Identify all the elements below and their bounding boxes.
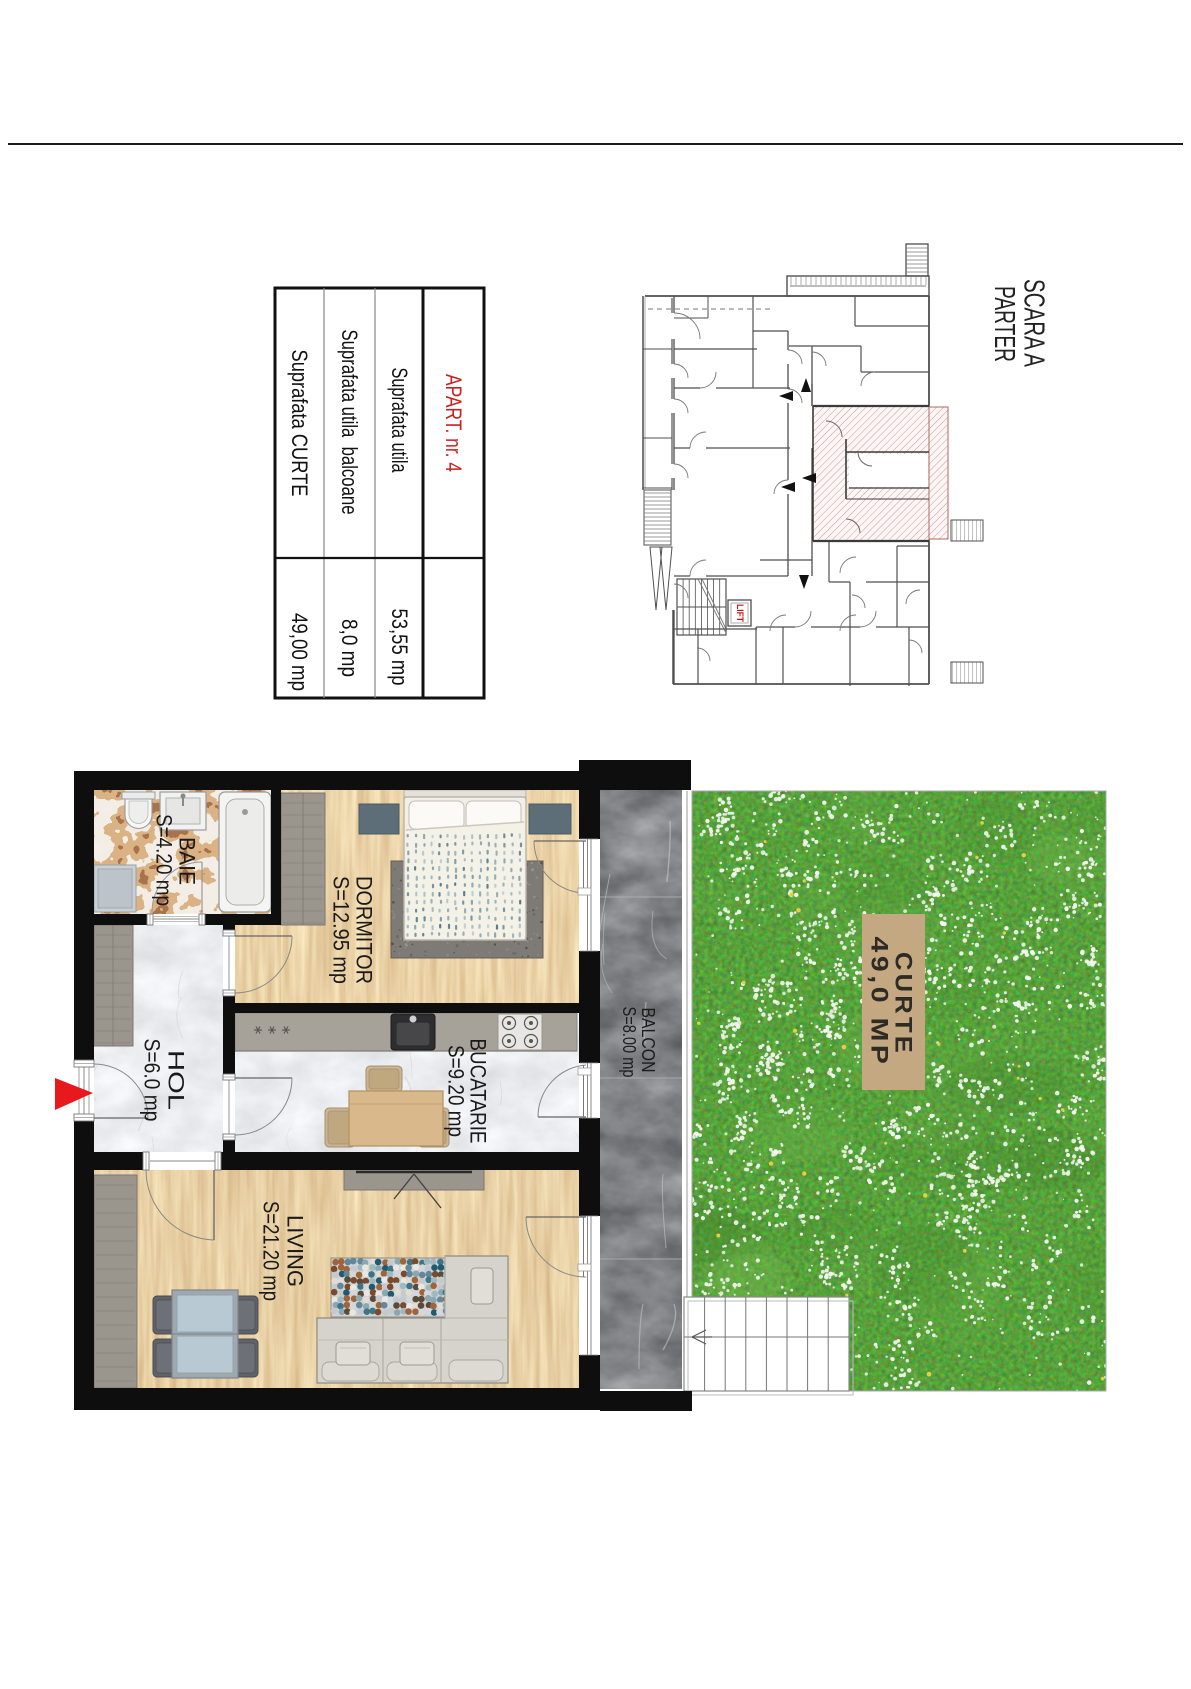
svg-text:S=6.0 mp: S=6.0 mp: [140, 1039, 165, 1122]
svg-text:49,0 MP: 49,0 MP: [866, 937, 893, 1068]
svg-text:BALCON: BALCON: [638, 1008, 658, 1073]
svg-text:HOL: HOL: [164, 1050, 189, 1110]
svg-text:BAIE: BAIE: [175, 837, 200, 885]
svg-text:49,00 mp: 49,00 mp: [287, 613, 312, 691]
svg-text:LIFT: LIFT: [734, 604, 745, 622]
svg-text:S=12.95 mp: S=12.95 mp: [329, 876, 354, 984]
svg-text:53,55 mp: 53,55 mp: [387, 609, 412, 686]
svg-text:S=9.20 mp: S=9.20 mp: [444, 1045, 469, 1137]
svg-text:S=8.00 mp: S=8.00 mp: [619, 1007, 639, 1078]
svg-text:Suprafata utila balcoane: Suprafata utila balcoane: [337, 330, 362, 515]
svg-text:PARTER: PARTER: [988, 286, 1020, 362]
svg-text:SCARA A: SCARA A: [1018, 279, 1050, 367]
svg-text:Suprafata CURTE: Suprafata CURTE: [287, 350, 312, 497]
svg-text:APART. nr. 4: APART. nr. 4: [441, 374, 466, 472]
svg-text:Suprafata utila: Suprafata utila: [387, 368, 412, 474]
svg-text:S=21.20 mp: S=21.20 mp: [259, 1201, 284, 1301]
svg-text:DORMITOR: DORMITOR: [352, 876, 377, 984]
svg-text:S=4.20 mp: S=4.20 mp: [152, 814, 177, 906]
svg-text:8,0 mp: 8,0 mp: [337, 619, 362, 677]
svg-text:CURTE: CURTE: [890, 952, 917, 1056]
svg-text:LIVING: LIVING: [283, 1215, 308, 1287]
